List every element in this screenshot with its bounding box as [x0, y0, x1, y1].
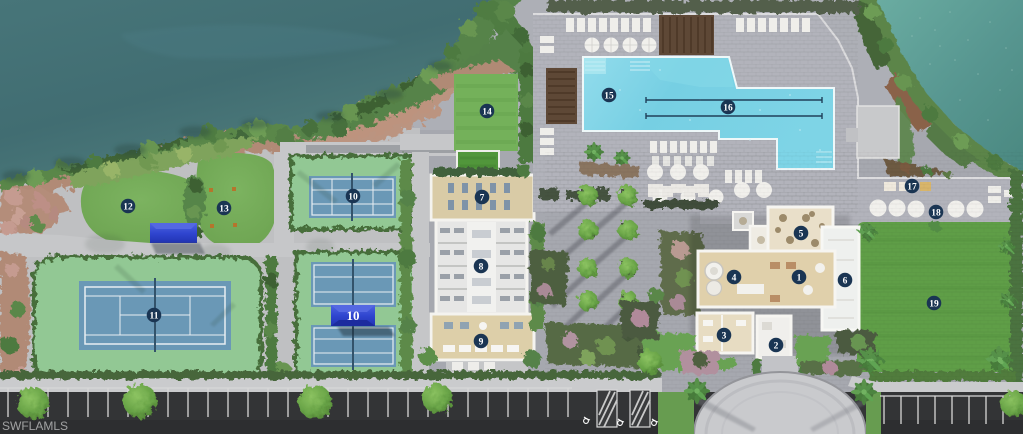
svg-text:14: 14: [482, 108, 492, 118]
svg-text:2: 2: [774, 342, 779, 352]
svg-text:12: 12: [123, 203, 133, 213]
svg-text:18: 18: [931, 209, 941, 219]
svg-text:10: 10: [348, 193, 358, 203]
svg-text:9: 9: [479, 338, 484, 348]
svg-text:5: 5: [799, 230, 804, 240]
svg-text:11: 11: [150, 312, 159, 322]
svg-text:4: 4: [732, 274, 737, 284]
svg-text:6: 6: [843, 277, 848, 287]
svg-text:SWFLAMLS: SWFLAMLS: [2, 419, 68, 433]
svg-text:13: 13: [219, 205, 229, 215]
svg-text:7: 7: [480, 194, 485, 204]
svg-text:17: 17: [907, 183, 917, 193]
svg-text:10: 10: [347, 308, 360, 323]
svg-text:1: 1: [797, 274, 802, 284]
svg-text:3: 3: [722, 332, 727, 342]
svg-text:8: 8: [479, 263, 484, 273]
svg-text:15: 15: [604, 92, 614, 102]
svg-text:16: 16: [723, 104, 733, 114]
svg-text:19: 19: [929, 300, 939, 310]
